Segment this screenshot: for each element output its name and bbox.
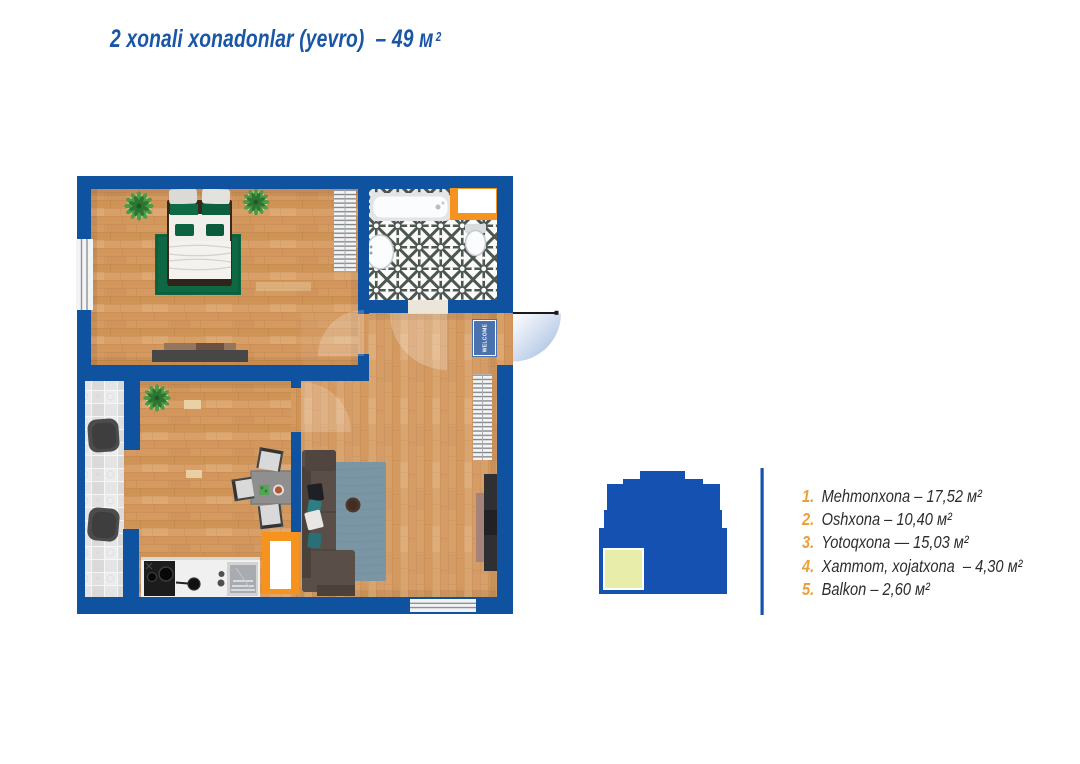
svg-text:WELCOME: WELCOME (483, 323, 489, 352)
